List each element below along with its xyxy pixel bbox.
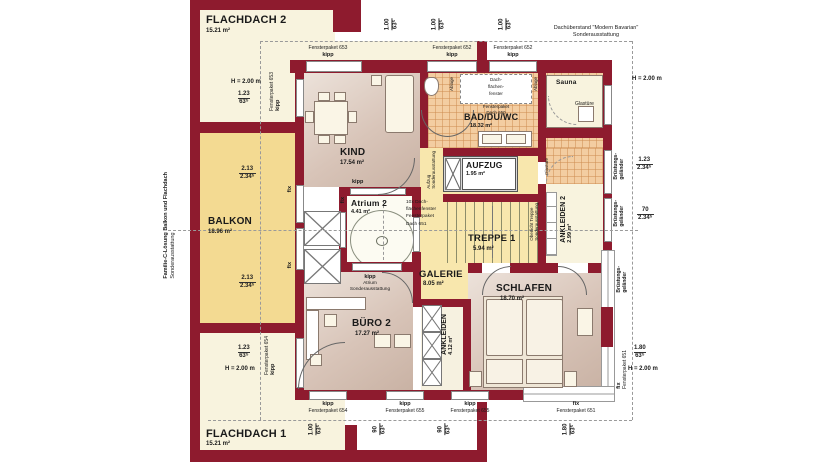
dim-den: 63⁵	[444, 424, 452, 436]
dim-right-1: 1.23 2.34⁵	[636, 157, 653, 172]
bruestung-text2: geländer	[622, 266, 628, 293]
dach-note-line2: Sonderausstattung	[573, 32, 619, 38]
window-label-654-bottom: kipp Fensterpaket 654	[301, 401, 355, 415]
wall-aufzug-bottom	[443, 194, 538, 202]
kipp-text: kipp	[507, 52, 518, 58]
oberlicht-note: Oberlicht Treppe Sonderausstattung	[529, 203, 539, 241]
dachueberstand-note: Dachüberstand "Modern Bavarian" Sonderau…	[540, 25, 652, 39]
dim-num: 1.80	[562, 424, 568, 436]
window-label-653-left: Fensterpaket 653 kipp	[269, 72, 281, 111]
atrium-label: Atrium 2	[351, 198, 387, 208]
roof651-line4: Dach 651	[406, 222, 427, 227]
dim-bottom-2: 90 63⁵	[372, 424, 387, 436]
window-label-655-b: kipp Fensterpaket 655	[443, 401, 497, 415]
flachdach1-label: FLACHDACH 1	[206, 428, 286, 440]
wall-sauna-bottom	[538, 128, 611, 138]
kind-lamp	[371, 75, 382, 86]
window-fix-left-2	[296, 228, 304, 270]
fix-label-2: fix	[340, 197, 346, 203]
schlafen-mattress	[526, 299, 563, 356]
buero-side-table	[394, 334, 411, 348]
dim-den: 63⁵	[379, 424, 387, 436]
fix-label-3: fix	[287, 262, 293, 268]
window-right-bruestung-1	[604, 150, 612, 194]
window-label-652-b: Fensterpaket 652 kipp	[483, 45, 543, 59]
schlafen-mattress	[486, 299, 523, 356]
ankleiden-area: 4.12 m²	[448, 314, 454, 355]
window-buero-bottom	[309, 391, 347, 400]
atrium-tree-trunk	[376, 236, 388, 246]
dim-num: 1.00	[431, 19, 437, 31]
ablage-label-2: Ablage	[533, 77, 538, 91]
window-label-651-right: fix Fensterpaket 651	[616, 350, 628, 389]
bruestung-text2: geländer	[619, 200, 625, 227]
glastuere-text: Glastüre	[575, 101, 594, 107]
roof651-line2: flächenfenster	[406, 207, 436, 212]
wall-balkon-left	[190, 133, 200, 333]
roof651-line1: 10x Dach-	[406, 200, 428, 205]
roof-overhang-bottom	[208, 420, 632, 421]
ankleiden2-name: ANKLEIDEN 2	[560, 196, 567, 243]
roof650-line4: Fensterpaket	[483, 104, 509, 109]
dim-bottom-1: 1.00 63⁵	[308, 424, 323, 436]
fp654-text: Fensterpaket 654	[309, 408, 348, 414]
balkon-label: BALKON	[208, 216, 252, 227]
wall-balkon-top	[190, 122, 302, 133]
dim-num: 2.13	[241, 166, 253, 172]
ablage-text: Ablage	[533, 77, 538, 91]
atrium-area: 4.41 m²	[351, 209, 370, 215]
dim-den: 63⁵	[391, 19, 399, 31]
wardrobe-cell-1	[422, 305, 442, 332]
kind-chair	[334, 92, 346, 101]
wall-lobby-b	[538, 184, 546, 263]
atrium-note-kipp: kipp	[364, 274, 375, 280]
kipp-text: kipp	[275, 72, 281, 111]
window-label-653-top: Fensterpaket 653 kipp	[296, 45, 360, 59]
roof651-note: 10x Dach- flächenfenster Fensterpaket Da…	[406, 199, 436, 228]
dim-num: 90	[372, 426, 378, 433]
window-sauna-glass-door	[604, 85, 612, 125]
fix-text: fix	[287, 262, 293, 268]
buero-area: 17.27 m²	[355, 331, 379, 337]
ankleiden2-wardrobe	[546, 192, 557, 256]
wall-bad-sinks	[443, 148, 538, 156]
ankleiden2-area: 2.99 m²	[567, 196, 573, 243]
side-note: Familie-C-Lösung Balkon und Flachdach So…	[163, 172, 177, 279]
atrium-note-line2: Atrium	[363, 281, 377, 286]
bad-area: 18.32 m²	[470, 123, 492, 129]
bruestung-label-2: Brüstungs- geländer	[613, 200, 625, 227]
wall-flachdach2-left	[190, 0, 200, 133]
dim-den: 63⁵	[569, 424, 577, 436]
wall-flachdach2-pillar	[333, 10, 361, 32]
flachdach1-area: 15.21 m²	[206, 441, 230, 447]
nightstand	[469, 371, 482, 387]
glastuere-label-h: Glastüre	[575, 101, 594, 108]
kind-chair	[318, 92, 330, 101]
height-label-top-right: H = 2.00 m	[632, 76, 662, 82]
elevator-shaft	[445, 158, 461, 190]
wall-balkon-bottom	[190, 323, 302, 333]
bruestung-text2: geländer	[619, 153, 625, 180]
wall-flachdach1-bottom	[190, 450, 487, 462]
roof-overhang-top	[260, 41, 632, 42]
wall-flachdach2-top	[190, 0, 361, 10]
dim-den: 2.34⁵	[239, 173, 256, 181]
wall-corner-pillar	[601, 307, 613, 347]
wall-sauna-left	[538, 73, 546, 130]
bath-sink	[482, 134, 502, 144]
glastuere-label-v: Glastüre	[544, 158, 549, 175]
kipp-text: kipp	[399, 401, 410, 407]
dim-num: 1.23	[238, 91, 250, 97]
kind-chair	[334, 135, 346, 144]
fp655-text: Fensterpaket 655	[451, 408, 490, 414]
roof650-tub-note: Dach- flächen- fenster	[462, 77, 530, 97]
dim-num: 2.13	[241, 275, 253, 281]
dim-den: 63⁵	[634, 352, 646, 360]
glass-floor-panel-1	[304, 211, 341, 246]
kind-chair	[305, 111, 314, 123]
fix-text: fix	[573, 401, 579, 407]
flachdach2-label: FLACHDACH 2	[206, 14, 286, 26]
glass-floor-panel-2	[304, 249, 341, 284]
kind-area: 17.54 m²	[340, 160, 364, 166]
window-atrium-bottom	[352, 263, 402, 271]
galerie-label: GALERIE	[419, 269, 463, 280]
window-bad-top-1	[427, 61, 477, 72]
aufzug-note: Aufzug Sonderausstattung	[426, 151, 436, 189]
dim-top-3: 1.00 63⁵	[498, 19, 513, 31]
fp652-text: Fensterpaket 652	[433, 45, 472, 51]
window-kind-top	[306, 61, 362, 72]
window-bad-top-2	[489, 61, 537, 72]
kipp-text: kipp	[464, 401, 475, 407]
ankleiden-name: ANKLEIDEN	[441, 314, 448, 355]
galerie-area: 8.05 m²	[423, 281, 444, 287]
aufzug-label: AUFZUG	[466, 160, 503, 170]
dim-den: 2.34⁵	[239, 282, 256, 290]
dim-num: 1.00	[384, 19, 390, 31]
window-fix-left-1	[296, 185, 304, 223]
window-right-bruestung-2	[604, 198, 612, 242]
kipp-text: kipp	[270, 336, 276, 375]
roof650-pkg-note: Fensterpaket Dach 650	[466, 104, 526, 116]
buero-desk	[306, 297, 366, 310]
dim-right-2: 70 2.34⁵	[637, 207, 654, 222]
wall-flachdach1-left	[190, 333, 200, 462]
kipp-text: kipp	[322, 401, 333, 407]
buero-label: BÜRO 2	[352, 318, 391, 329]
schlafen-area: 18.70 m²	[500, 296, 524, 302]
h200-text: H = 2.00 m	[628, 366, 658, 372]
height-label-bottom-right: H = 2.00 m	[628, 366, 658, 372]
balkon-area: 18.96 m²	[208, 229, 232, 235]
window-label-652-a: Fensterpaket 652 kipp	[421, 45, 483, 59]
kipp-label-atrium-top: kipp	[352, 179, 363, 186]
dim-bottom-4: 1.80 63⁵	[562, 424, 577, 436]
nightstand	[564, 371, 577, 387]
bath-sink	[506, 134, 526, 144]
window-label-654-left: Fensterpaket 654 kipp	[264, 336, 276, 375]
wardrobe-cell-3	[422, 359, 442, 386]
treppe-label: TREPPE 1	[468, 233, 516, 244]
side-note-line2: Sonderausstattung	[170, 172, 177, 279]
kipp-text: kipp	[446, 52, 457, 58]
kipp-text: kipp	[322, 52, 333, 58]
kind-table	[314, 101, 348, 135]
wall-schlafen-top-b	[510, 263, 558, 273]
height-label-bottom-left: H = 2.00 m	[225, 366, 255, 372]
dim-den: 2.34⁵	[637, 214, 654, 222]
glastuere-text: Glastüre	[544, 158, 549, 175]
dim-num: 1.00	[498, 19, 504, 31]
roof650-line1: Dach-	[490, 77, 502, 82]
kind-bed	[385, 75, 414, 133]
dim-left-bottom: 1.23 63⁵	[238, 345, 250, 360]
schlafen-side-table	[577, 308, 593, 336]
dim-den: 63⁵	[238, 352, 250, 360]
roof650-line3: fenster	[489, 91, 503, 96]
dim-right-3: 1.80 63⁵	[634, 345, 646, 360]
fix-label-1: fix	[287, 186, 293, 192]
fp651-text: Fensterpaket 651	[557, 408, 596, 414]
ablage-text: Ablage	[449, 77, 454, 91]
balkon-floor	[200, 133, 295, 323]
fix-text: fix	[287, 186, 293, 192]
schlafen-pillow	[486, 359, 523, 384]
atrium-axis-line	[383, 200, 384, 260]
h200-text: H = 2.00 m	[231, 79, 261, 85]
buero-chair	[324, 314, 337, 327]
dach-note-line1: Dachüberstand "Modern Bavarian"	[554, 25, 639, 31]
sauna-label: Sauna	[556, 79, 577, 86]
bruestung-label-1: Brüstungs- geländer	[613, 153, 625, 180]
flachdach2-area: 15.21 m²	[206, 28, 230, 34]
aufzug-note-line2: Sonderausstattung	[431, 151, 436, 189]
dim-num: 1.23	[238, 345, 250, 351]
atrium-note-line3: Sonderausstattung	[350, 287, 390, 292]
ankleiden2-label: ANKLEIDEN 2 2.99 m²	[560, 196, 573, 243]
window-label-655-a: kipp Fensterpaket 655	[378, 401, 432, 415]
atrium-sonder-note: kipp Atrium Sonderausstattung	[340, 274, 400, 294]
dim-bottom-3: 90 63⁵	[437, 424, 452, 436]
roof651-line3: Fensterpaket	[406, 214, 434, 219]
dim-num: 1.23	[638, 157, 650, 163]
kind-label: KIND	[340, 147, 365, 158]
dim-top-1: 1.00 63⁵	[384, 19, 399, 31]
treppe-area: 5.94 m²	[473, 246, 494, 252]
fp655-text: Fensterpaket 655	[386, 408, 425, 414]
dim-den: 63⁵	[315, 424, 323, 436]
dim-num: 1.00	[308, 424, 314, 436]
dim-balkon-2: 2.13 2.34⁵	[239, 275, 256, 290]
dim-den: 63⁵	[505, 19, 513, 31]
aufzug-area: 1.95 m²	[466, 171, 485, 177]
dim-den: 63⁵	[438, 19, 446, 31]
roof650-line5: Dach 650	[486, 110, 505, 115]
h200-text: H = 2.00 m	[225, 366, 255, 372]
wardrobe-cell-2	[422, 332, 442, 359]
oberlicht-line2: Sonderausstattung	[534, 203, 539, 241]
dim-left-top: 1.23 63⁵	[238, 91, 250, 106]
bruestung-label-3: Brüstungs- geländer	[616, 266, 628, 293]
dim-num: 90	[437, 426, 443, 433]
corner-window-bottom	[523, 386, 615, 402]
height-label-top-left: H = 2.00 m	[231, 79, 261, 85]
ablage-label-1: Ablage	[449, 77, 454, 91]
ankleiden-label: ANKLEIDEN 4.12 m²	[441, 314, 454, 355]
window-bottom-655a	[386, 391, 424, 400]
fp652-text: Fensterpaket 652	[494, 45, 533, 51]
wc-toilet	[424, 77, 439, 96]
wall-schlafen-top-a	[468, 263, 482, 273]
dim-den: 63⁵	[238, 98, 250, 106]
schlafen-label: SCHLAFEN	[496, 283, 552, 294]
roof650-line2: flächen-	[488, 84, 504, 89]
dim-num: 70	[642, 207, 649, 213]
floor-plan: FLACHDACH 2 15.21 m² FLACHDACH 1 15.21 m…	[0, 0, 840, 462]
dim-balkon-1: 2.13 2.34⁵	[239, 166, 256, 181]
door-arc-schlafen-2	[558, 266, 587, 295]
kipp-text: kipp	[352, 179, 363, 185]
fix-text: fix	[340, 197, 346, 203]
sauna-heater	[578, 106, 594, 122]
kind-chair	[318, 135, 330, 144]
kind-chair	[348, 111, 357, 123]
fp653-text: Fensterpaket 653	[309, 45, 348, 51]
h200-text: H = 2.00 m	[632, 76, 662, 82]
dim-num: 1.80	[634, 345, 646, 351]
dim-den: 2.34⁵	[636, 164, 653, 172]
window-label-651-bottom: fix Fensterpaket 651	[548, 401, 604, 415]
dim-top-2: 1.00 63⁵	[431, 19, 446, 31]
window-bottom-655b	[451, 391, 489, 400]
schlafen-pillow	[526, 359, 563, 384]
window-kind-left	[296, 79, 304, 117]
